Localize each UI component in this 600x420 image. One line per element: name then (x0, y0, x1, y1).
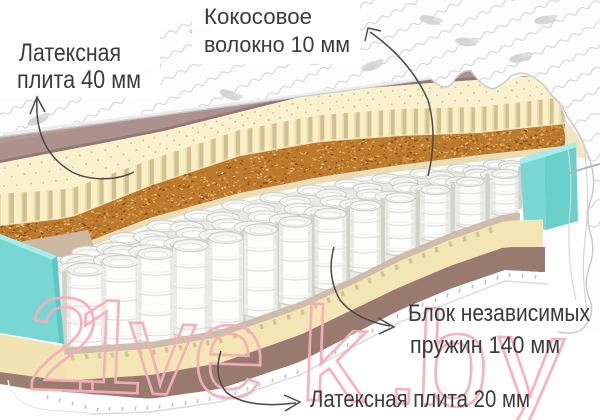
svg-text:Латексная: Латексная (19, 39, 121, 67)
svg-text:плита 40 мм: плита 40 мм (17, 66, 141, 94)
svg-text:волокно 10 мм: волокно 10 мм (204, 32, 350, 57)
svg-text:Блок независимых: Блок независимых (408, 300, 590, 327)
svg-text:Латексная плита 20 мм: Латексная плита 20 мм (310, 386, 530, 413)
svg-text:пружин 140 мм: пружин 140 мм (410, 332, 560, 359)
svg-text:Кокосовое: Кокосовое (204, 4, 312, 29)
